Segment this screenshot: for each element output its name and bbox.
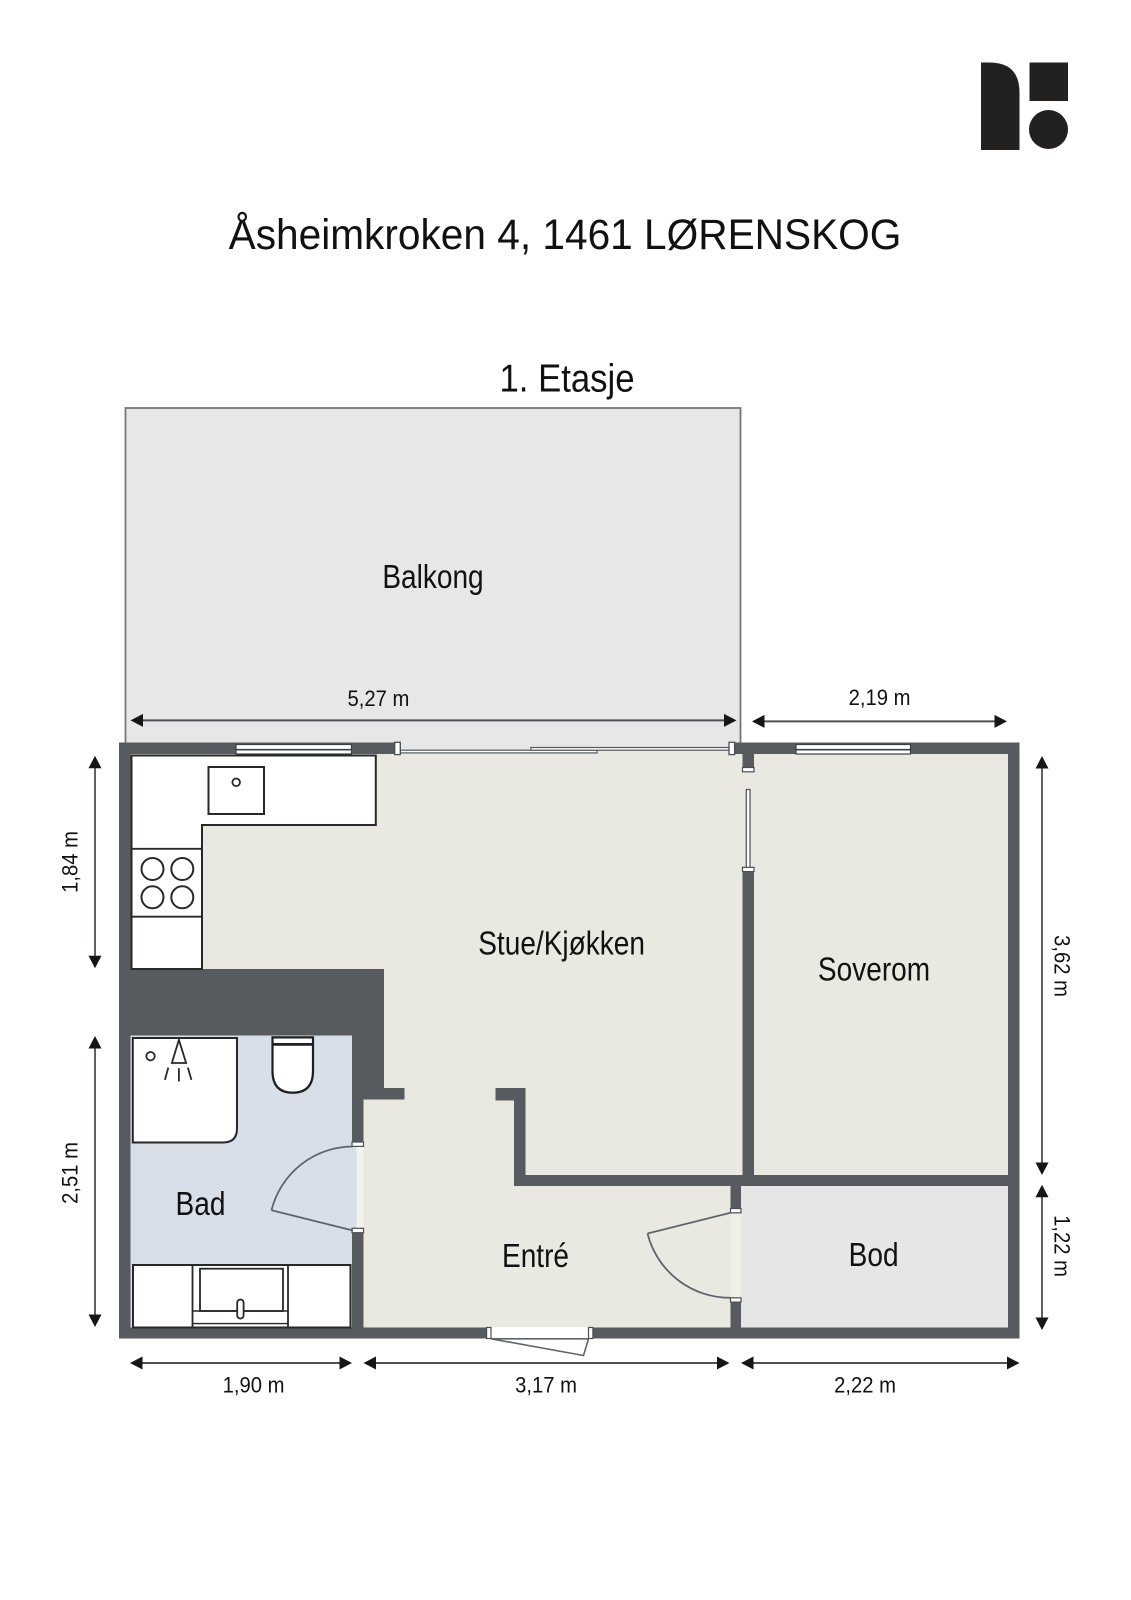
svg-text:Åsheimkroken 4, 1461 LØRENSKOG: Åsheimkroken 4, 1461 LØRENSKOG	[229, 210, 902, 258]
svg-text:1,90 m: 1,90 m	[223, 1374, 285, 1398]
svg-text:1. Etasje: 1. Etasje	[499, 357, 634, 400]
svg-text:Soverom: Soverom	[818, 951, 930, 988]
svg-text:2,51 m: 2,51 m	[59, 1142, 83, 1204]
svg-text:Entré: Entré	[502, 1238, 569, 1275]
svg-text:Stue/Kjøkken: Stue/Kjøkken	[478, 925, 645, 962]
svg-text:Bad: Bad	[176, 1186, 226, 1223]
svg-text:2,22 m: 2,22 m	[834, 1374, 896, 1398]
svg-text:3,62 m: 3,62 m	[1049, 935, 1073, 997]
svg-text:Bod: Bod	[849, 1237, 899, 1274]
svg-text:2,19 m: 2,19 m	[849, 686, 911, 710]
svg-text:1,22 m: 1,22 m	[1049, 1215, 1073, 1277]
svg-text:3,17 m: 3,17 m	[515, 1374, 577, 1398]
svg-text:Balkong: Balkong	[382, 559, 483, 596]
svg-text:1,84 m: 1,84 m	[59, 831, 83, 893]
svg-text:5,27 m: 5,27 m	[347, 687, 409, 711]
